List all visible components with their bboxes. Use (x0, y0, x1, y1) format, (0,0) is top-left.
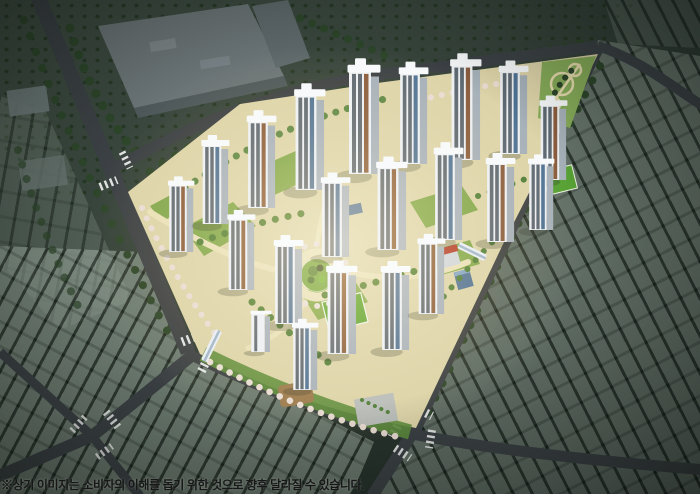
aerial-scene (0, 0, 700, 494)
rendering-canvas: ※상기 이미지는 소비자의 이해를 돕기 위한 것으로 향후 달라질 수 있습니… (0, 0, 700, 494)
disclaimer-text: ※상기 이미지는 소비자의 이해를 돕기 위한 것으로 향후 달라질 수 있습니… (1, 476, 364, 493)
vignette-overlay (0, 0, 700, 494)
